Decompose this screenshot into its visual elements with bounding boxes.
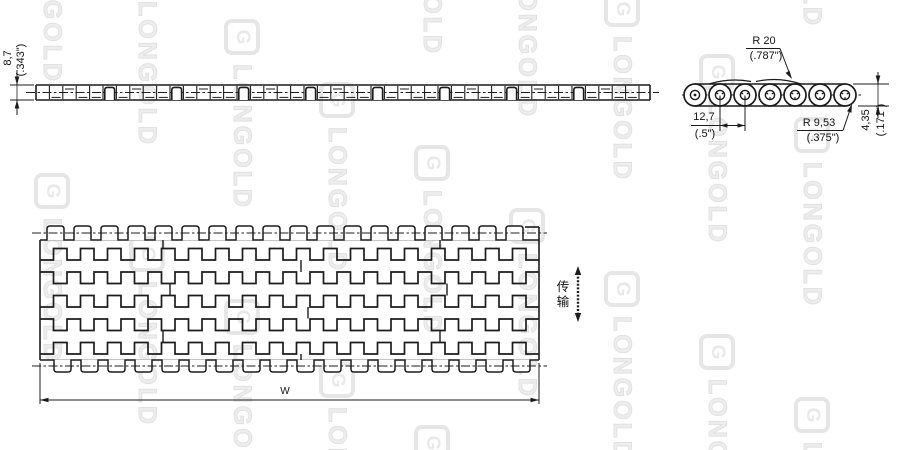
top-view xyxy=(32,226,581,372)
belt-technical-drawing xyxy=(0,0,900,450)
pitch-inch-label: (.5") xyxy=(695,128,715,140)
chain-end-view xyxy=(682,80,861,107)
pitch-mm-label: 12,7 xyxy=(693,111,714,123)
belt-width-label: W xyxy=(280,386,289,398)
link-radius-label: R 9,53 xyxy=(803,117,835,129)
thickness-inch-label: (.343") xyxy=(15,44,27,77)
surface-radius-label: R 20 xyxy=(752,35,775,47)
conveying-direction-label: 传输 xyxy=(556,280,570,310)
link-radius-inch-label: (.375") xyxy=(807,132,840,144)
thickness-mm-label: 8,7 xyxy=(2,50,14,65)
edge-height-mm-label: 4,35 xyxy=(860,109,872,130)
side-view xyxy=(26,85,659,100)
surface-radius-inch-label: (.787") xyxy=(750,50,783,62)
drawing-canvas: GLONGOLDGLONGOLDGLONGOLDGLONGOLDGLONGOLD… xyxy=(0,0,900,450)
edge-height-inch-label: (.171") xyxy=(875,104,887,137)
